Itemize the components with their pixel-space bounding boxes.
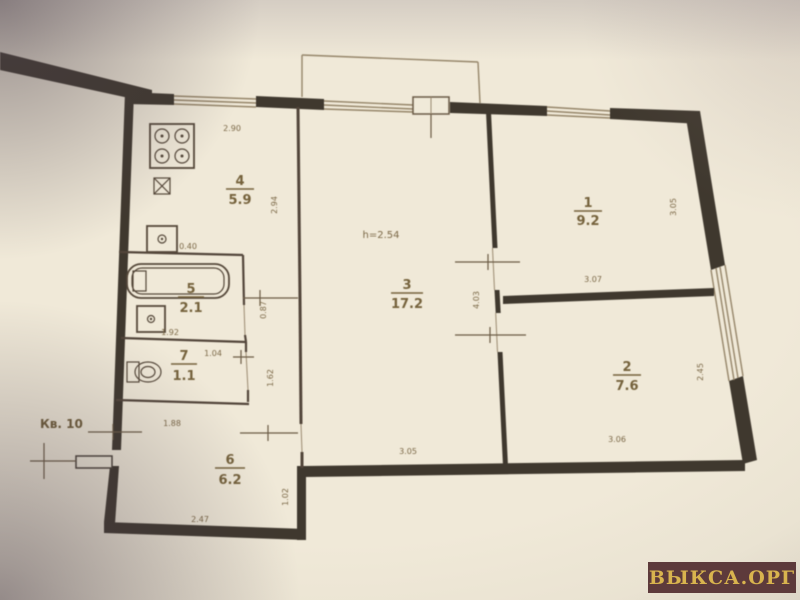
room-4-number: 4 <box>235 174 244 189</box>
wc-door <box>246 352 248 390</box>
room-7-number: 7 <box>179 349 188 364</box>
kitchen-sink-icon <box>147 226 177 252</box>
room1-room2-wall <box>503 288 714 304</box>
top-wall-seg-b <box>256 96 324 110</box>
room3-door <box>301 424 302 452</box>
room3-rooms12-wall-b <box>495 290 501 313</box>
apartment-number-label: Кв. 10 <box>40 417 83 431</box>
room-label-5: 5 2.1 <box>178 282 204 316</box>
room-2-area: 7.6 <box>615 379 638 394</box>
bath-door <box>244 305 245 335</box>
left-wall-upper <box>112 92 134 450</box>
room-label-3: 3 17.2 h=2.54 <box>363 230 424 312</box>
wc-hall-wall <box>116 400 249 404</box>
room-1-number: 1 <box>583 196 592 211</box>
dim-hall-gap-a: 0.87 <box>259 301 268 319</box>
watermark-text: ВЫКСА.ОРГ <box>649 567 795 589</box>
vent-icon <box>154 178 170 194</box>
entrance-door <box>30 443 112 479</box>
room2-door <box>496 313 498 352</box>
bottom-wall-hall <box>104 522 306 540</box>
right-wall-lower <box>729 376 757 464</box>
dim-hall-side: 1.02 <box>281 488 290 506</box>
dim-hall-gap-b: 1.62 <box>266 369 275 387</box>
kitchen-stove-icon <box>150 124 194 168</box>
balcony-outline <box>302 55 480 103</box>
dim-hall-top: 1.88 <box>163 419 181 428</box>
room-4-area: 5.9 <box>228 193 251 208</box>
kitchen-window <box>174 96 256 107</box>
right-wall-upper <box>686 111 725 270</box>
room-label-2: 2 7.6 <box>613 360 641 394</box>
room-label-1: 1 9.2 <box>574 196 602 229</box>
room3-balcony-window <box>324 97 449 138</box>
bathtub-icon <box>127 264 229 298</box>
room3-rooms12-wall-c <box>498 352 509 466</box>
dim-kitchen-top: 2.90 <box>223 124 241 133</box>
dim-room3-wall: 4.03 <box>472 291 481 309</box>
top-wall-seg-d <box>610 108 700 124</box>
room-7-area: 1.1 <box>172 369 195 384</box>
dim-room3-bottom: 3.05 <box>399 447 417 456</box>
windows <box>174 96 743 381</box>
room-label-4: 4 5.9 <box>226 174 254 208</box>
room-6-number: 6 <box>225 453 234 468</box>
top-wall-seg-c <box>450 102 547 116</box>
floorplan-photo: 1 9.2 2 7.6 3 17.2 h=2.54 4 5.9 5 2.1 6 <box>0 0 800 600</box>
room1-window <box>547 107 610 118</box>
room-5-area: 2.1 <box>179 301 202 316</box>
left-wall-lower <box>104 466 119 524</box>
dimension-ticks <box>88 254 526 441</box>
dim-wc-width: 1.04 <box>204 349 222 358</box>
room-2-number: 2 <box>622 360 631 375</box>
room-5-number: 5 <box>186 282 195 297</box>
room1-door <box>493 248 495 290</box>
room-3-number: 3 <box>402 278 411 293</box>
bottom-wall-right <box>306 460 745 477</box>
dim-hall-bottom: 2.47 <box>191 515 209 524</box>
watermark-vyksa: ВЫКСА.ОРГ <box>648 562 796 593</box>
dim-sink: 0.40 <box>179 242 197 251</box>
room-label-7: 7 1.1 <box>171 349 197 384</box>
bath-wc-wall <box>121 338 246 342</box>
room-1-area: 9.2 <box>576 214 599 229</box>
room-6-area: 6.2 <box>218 473 241 488</box>
room-3-area: 17.2 <box>391 297 423 312</box>
dim-room1-bottom: 3.07 <box>584 275 602 284</box>
floorplan-drawing: 1 9.2 2 7.6 3 17.2 h=2.54 4 5.9 5 2.1 6 <box>0 0 800 600</box>
room-label-6: 6 6.2 <box>215 453 245 488</box>
dim-room2-side: 2.45 <box>696 363 705 381</box>
room2-window <box>711 265 743 381</box>
kitchen-bath-wall <box>119 252 243 255</box>
dim-kitchen-side: 2.94 <box>270 196 279 214</box>
room3-rooms12-wall-a <box>486 112 498 248</box>
entrance-door-leaf <box>76 456 112 468</box>
toilet-icon <box>127 362 161 382</box>
dim-bath-width: 1.92 <box>161 328 179 337</box>
ceiling-height-label: h=2.54 <box>363 230 400 241</box>
dim-room1-side: 3.05 <box>669 198 678 216</box>
dim-room2-bottom: 3.06 <box>608 435 626 444</box>
interior-walls <box>116 107 714 468</box>
